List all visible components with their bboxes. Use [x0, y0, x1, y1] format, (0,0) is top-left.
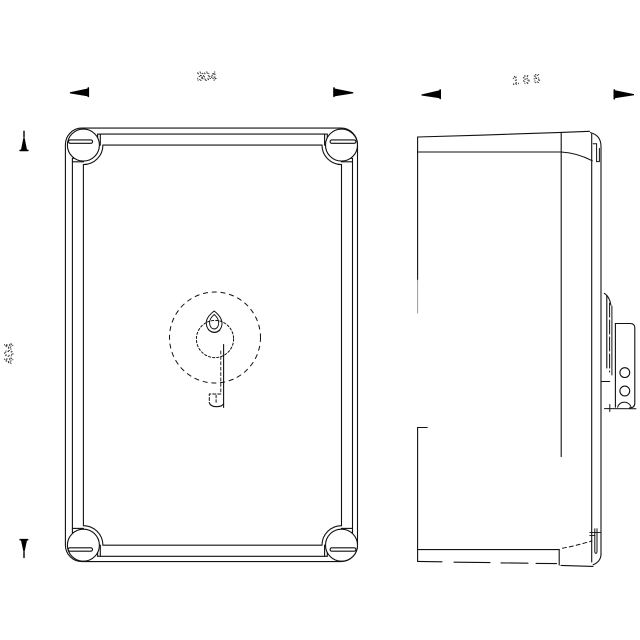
- svg-text:304: 304: [197, 70, 217, 84]
- svg-text:165: 165: [512, 71, 545, 87]
- svg-text:404: 404: [2, 342, 16, 364]
